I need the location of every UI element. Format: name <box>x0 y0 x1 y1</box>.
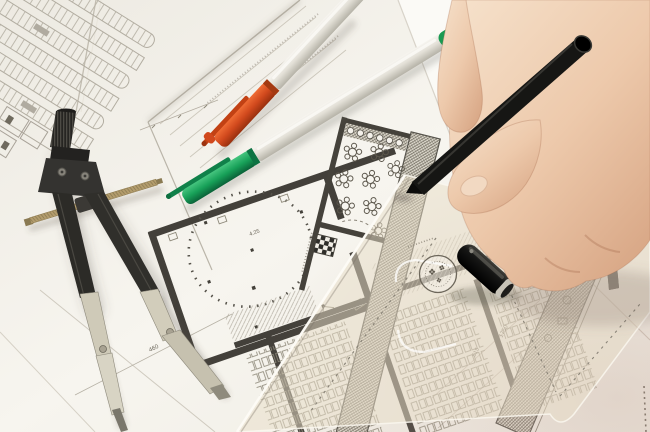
photo-architect-workspace: 460 4.25 1750 515 ❖ ❖ ❖ <box>0 0 650 432</box>
architect-stamp: ❖ ❖ ❖ <box>420 256 457 293</box>
compass-hinge <box>38 158 106 198</box>
stamp-glyph: ❖ <box>428 267 436 277</box>
